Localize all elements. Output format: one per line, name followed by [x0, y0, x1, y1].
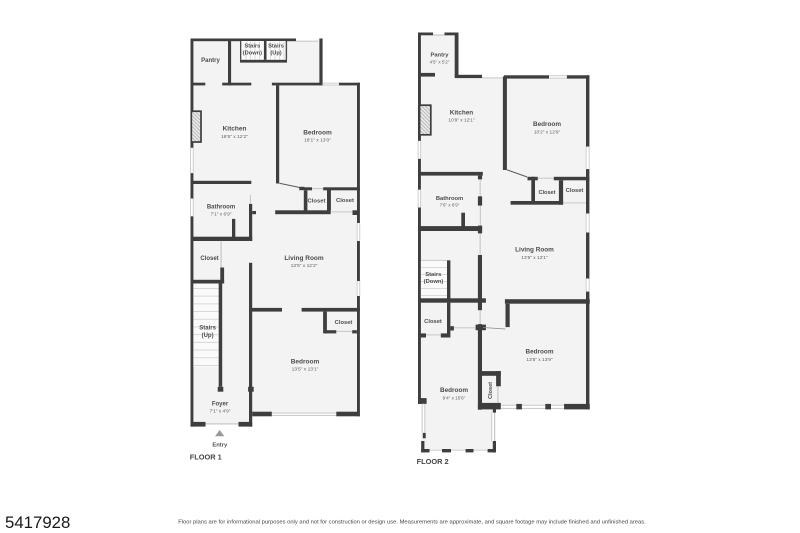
svg-text:FLOOR 1: FLOOR 1: [190, 452, 222, 461]
svg-text:Bathroom: Bathroom: [207, 204, 235, 210]
svg-text:Kitchen: Kitchen: [223, 126, 247, 133]
svg-text:Closet: Closet: [488, 382, 494, 399]
svg-text:Living Room: Living Room: [284, 255, 324, 262]
svg-text:Bedroom: Bedroom: [291, 358, 320, 365]
svg-text:FLOOR 2: FLOOR 2: [417, 457, 449, 466]
svg-text:Stairs: Stairs: [199, 325, 216, 331]
svg-text:(Down): (Down): [424, 279, 444, 285]
svg-text:18'1" x 13'0": 18'1" x 13'0": [304, 138, 331, 144]
svg-text:(Down): (Down): [243, 50, 262, 56]
svg-text:Closet: Closet: [424, 319, 442, 325]
svg-text:Pantry: Pantry: [430, 53, 449, 59]
svg-text:7'1" x 4'9": 7'1" x 4'9": [210, 408, 231, 414]
svg-text:10'2" x 12'9": 10'2" x 12'9": [534, 130, 561, 136]
svg-text:Closet: Closet: [307, 198, 325, 204]
svg-text:Bedroom: Bedroom: [440, 387, 468, 394]
svg-text:9'4" x 15'6": 9'4" x 15'6": [443, 395, 466, 400]
svg-text:Closet: Closet: [200, 256, 218, 262]
svg-text:Kitchen: Kitchen: [450, 110, 474, 117]
svg-text:Bedroom: Bedroom: [533, 121, 561, 128]
svg-text:Bedroom: Bedroom: [525, 349, 553, 356]
svg-text:Closet: Closet: [538, 190, 555, 196]
svg-text:(Up): (Up): [270, 50, 281, 56]
svg-text:Floor plans are for informatio: Floor plans are for informational purpos…: [178, 519, 646, 525]
svg-text:18'5" x 12'2": 18'5" x 12'2": [221, 134, 248, 140]
svg-text:Living Room: Living Room: [515, 247, 554, 254]
svg-text:Foyer: Foyer: [212, 402, 229, 408]
svg-text:4'5" x 5'2": 4'5" x 5'2": [430, 59, 450, 64]
svg-text:13'5" x 12'1": 13'5" x 12'1": [521, 255, 548, 261]
svg-text:Bathroom: Bathroom: [436, 196, 463, 202]
svg-text:5417928: 5417928: [5, 513, 70, 532]
svg-text:Closet: Closet: [335, 320, 353, 326]
svg-text:13'5" x 12'2": 13'5" x 12'2": [291, 263, 318, 269]
svg-text:13'5" x 13'9": 13'5" x 13'9": [526, 357, 553, 363]
svg-text:Bedroom: Bedroom: [303, 129, 332, 136]
svg-text:Stairs: Stairs: [425, 272, 441, 278]
svg-text:Pantry: Pantry: [201, 58, 220, 64]
svg-text:Closet: Closet: [336, 198, 354, 204]
svg-text:7'6" x 6'9": 7'6" x 6'9": [440, 202, 460, 207]
svg-text:Closet: Closet: [566, 188, 584, 194]
svg-text:7'1" x 6'9": 7'1" x 6'9": [211, 211, 232, 217]
svg-text:10'9" x 12'1": 10'9" x 12'1": [448, 118, 475, 124]
svg-text:Stairs: Stairs: [244, 43, 260, 49]
svg-text:13'5" x 13'1": 13'5" x 13'1": [292, 367, 319, 373]
svg-text:(Up): (Up): [202, 333, 214, 339]
svg-text:Entry: Entry: [212, 442, 228, 448]
svg-text:Stairs: Stairs: [268, 43, 284, 49]
